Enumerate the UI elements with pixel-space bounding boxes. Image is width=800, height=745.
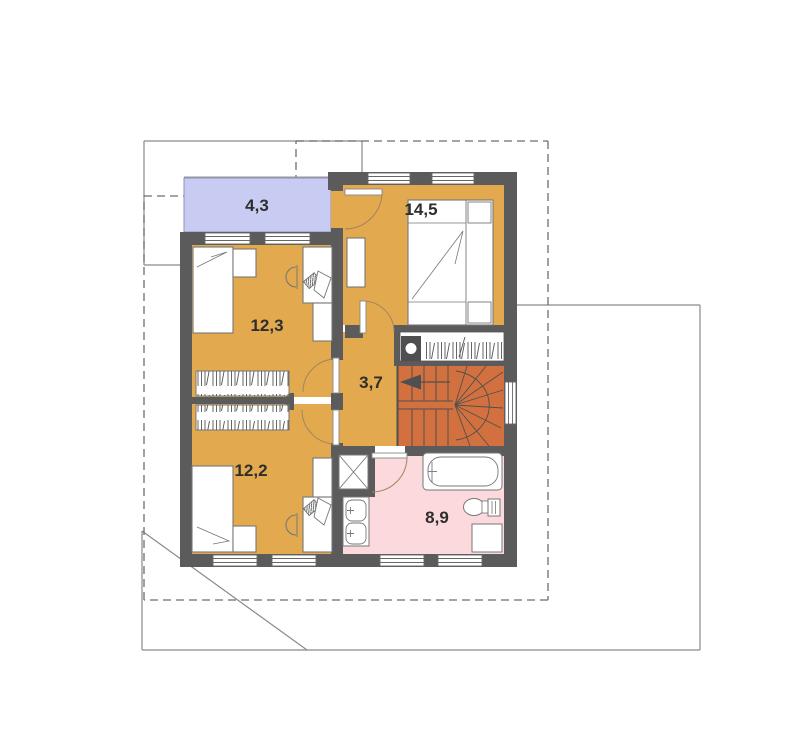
floor-door-gap-bedroom-large	[363, 325, 394, 338]
bed	[192, 466, 233, 552]
window	[432, 173, 474, 184]
nightstand	[233, 526, 256, 552]
bed	[193, 247, 233, 333]
toilet-tank	[488, 499, 500, 516]
door-leaf-bedroom-large	[360, 301, 366, 333]
door-leaf-balcony	[345, 189, 382, 195]
wall-left	[180, 232, 192, 567]
flue-opening	[406, 343, 417, 354]
room-area-label-bedroom-upper: 12,3	[250, 316, 283, 335]
floor-plan-drawing: 4,3 14,5 12,3 3,7 12,2 8,9	[0, 0, 800, 745]
washing-machine	[472, 524, 502, 552]
wall-top-right	[328, 172, 517, 185]
window	[205, 233, 250, 244]
wall-a-stub	[331, 393, 343, 410]
window	[438, 555, 482, 566]
room-area-label-balcony: 4,3	[245, 196, 269, 215]
room-area-label-hallway: 3,7	[359, 373, 383, 392]
toilet-bowl	[464, 499, 485, 516]
door-leaf-bedroom-upper	[333, 358, 339, 393]
window	[272, 555, 316, 566]
pillow	[468, 302, 491, 323]
window	[213, 555, 257, 566]
wall-partition	[192, 397, 288, 404]
room-area-label-bedroom-lower: 12,2	[234, 461, 267, 480]
room-area-label-bathroom: 8,9	[425, 508, 449, 527]
wall-right	[504, 172, 517, 567]
door-leaf-bedroom-lower	[333, 410, 339, 445]
room-area-label-bedroom-large: 14,5	[404, 200, 437, 219]
floor-plan-page: 4,3 14,5 12,3 3,7 12,2 8,9	[0, 0, 800, 745]
pillow	[468, 202, 491, 223]
wall-a-mid	[331, 228, 343, 360]
door-leaf-bathroom	[372, 453, 407, 458]
nightstand	[233, 249, 256, 277]
window	[368, 173, 410, 184]
window	[505, 382, 516, 424]
shelf	[313, 458, 332, 497]
wall-top-left	[180, 232, 343, 245]
cabinet	[347, 238, 365, 287]
wall-a-top	[331, 185, 343, 191]
vanity	[343, 497, 369, 546]
window	[265, 233, 310, 244]
hall-closet	[400, 332, 504, 361]
closet-hangers	[424, 334, 502, 359]
window	[380, 555, 424, 566]
shelf	[313, 303, 332, 341]
floor-balcony-door-gap	[331, 190, 343, 228]
terrace-outline-right	[517, 305, 700, 650]
